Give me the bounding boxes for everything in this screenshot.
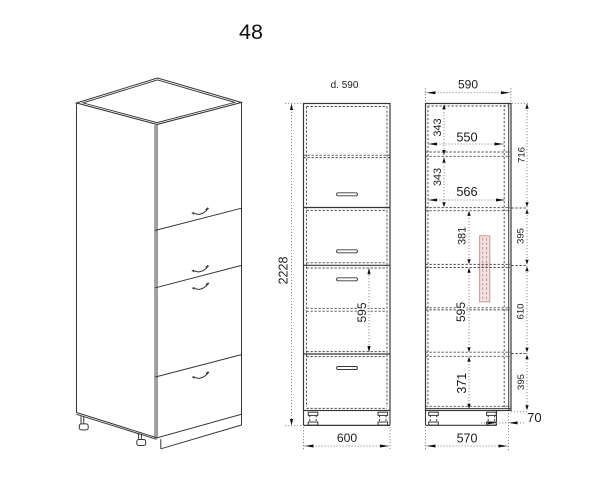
svg-text:566: 566 xyxy=(456,184,477,199)
svg-text:395: 395 xyxy=(516,374,527,390)
svg-text:2228: 2228 xyxy=(277,257,291,285)
svg-text:600: 600 xyxy=(337,431,358,445)
svg-text:343: 343 xyxy=(432,118,444,136)
svg-text:381: 381 xyxy=(456,227,468,245)
svg-text:70: 70 xyxy=(527,410,541,425)
svg-text:48: 48 xyxy=(239,20,263,44)
svg-text:590: 590 xyxy=(458,77,478,91)
svg-text:716: 716 xyxy=(517,147,528,163)
svg-text:595: 595 xyxy=(454,302,468,322)
svg-text:d. 590: d. 590 xyxy=(331,80,359,91)
svg-text:570: 570 xyxy=(457,432,478,446)
svg-text:371: 371 xyxy=(455,373,469,394)
svg-text:550: 550 xyxy=(456,129,477,144)
svg-text:343: 343 xyxy=(432,168,444,186)
svg-text:610: 610 xyxy=(516,303,527,319)
svg-text:395: 395 xyxy=(516,228,527,244)
svg-text:595: 595 xyxy=(355,302,369,322)
